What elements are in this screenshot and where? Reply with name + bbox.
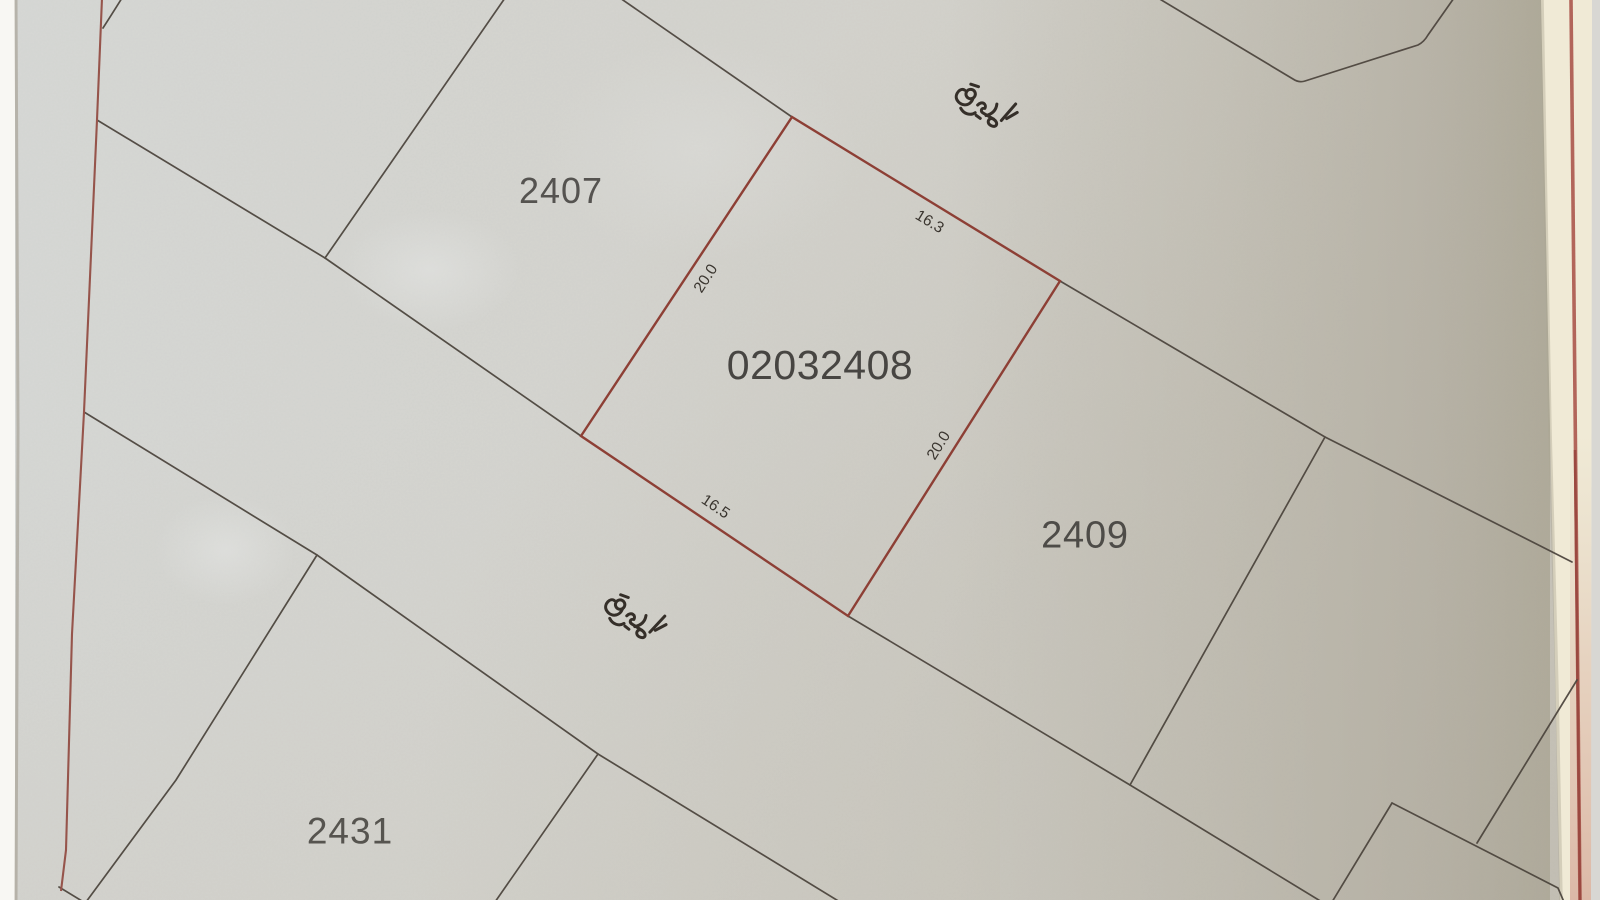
- svg-text:2431: 2431: [307, 810, 393, 851]
- svg-text:2409: 2409: [1041, 515, 1129, 557]
- svg-text:2407: 2407: [519, 170, 603, 211]
- svg-text:02032408: 02032408: [727, 342, 913, 388]
